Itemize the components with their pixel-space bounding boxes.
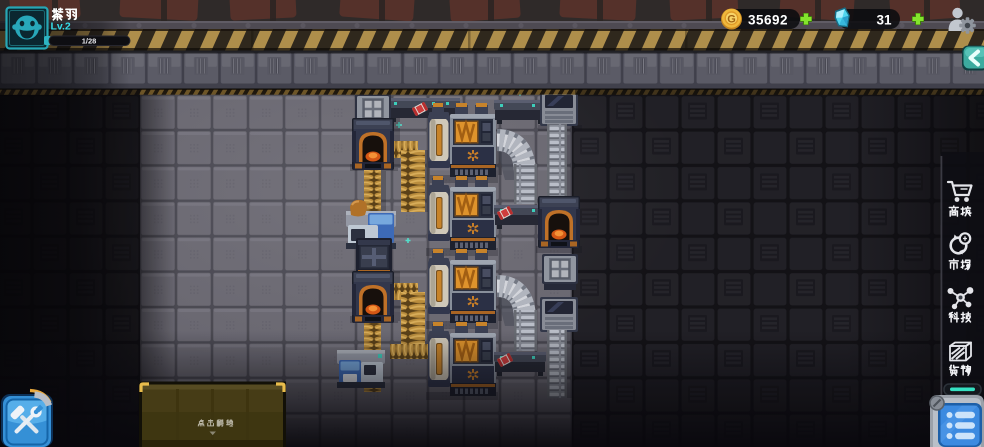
svg-text:1/28: 1/28 (82, 37, 97, 46)
svg-text:31: 31 (876, 12, 892, 27)
svg-text:Lv.2: Lv.2 (51, 21, 71, 33)
svg-text:G: G (727, 13, 736, 25)
svg-text:35692: 35692 (748, 12, 788, 27)
